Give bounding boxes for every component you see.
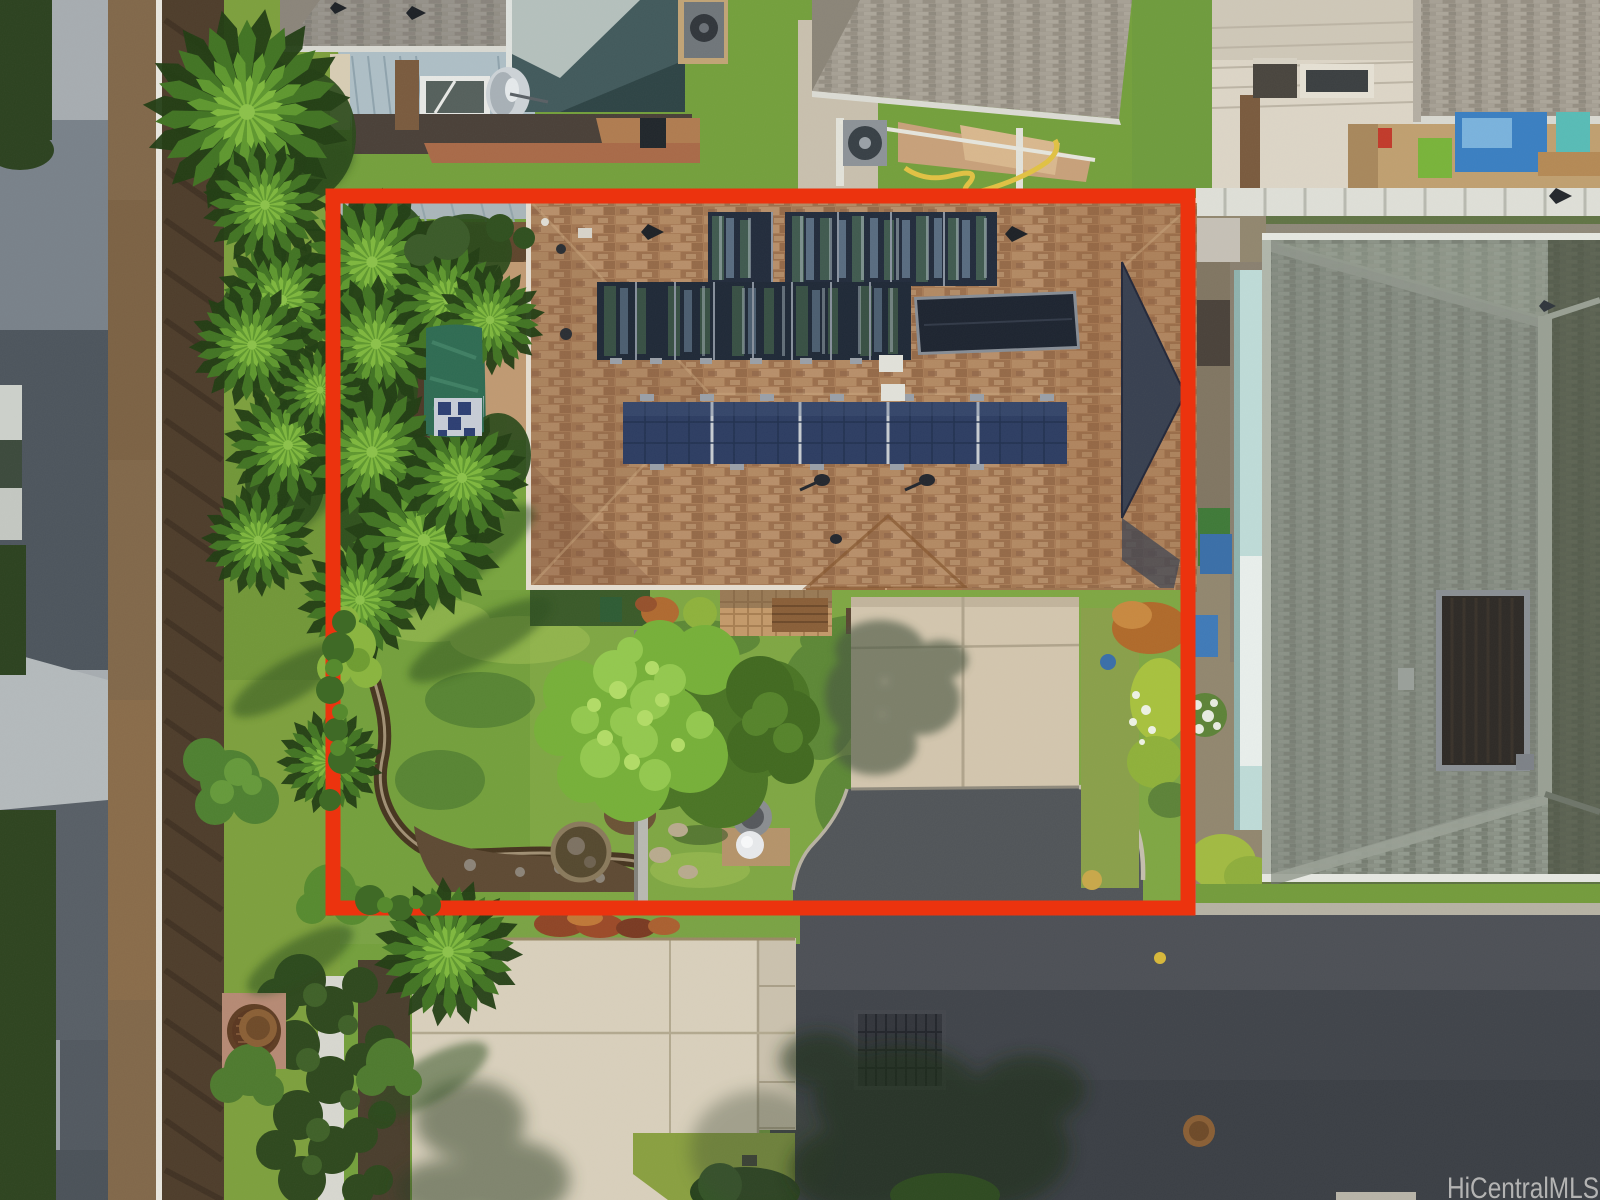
svg-text:HiCentralMLS: HiCentralMLS xyxy=(1447,1172,1599,1200)
